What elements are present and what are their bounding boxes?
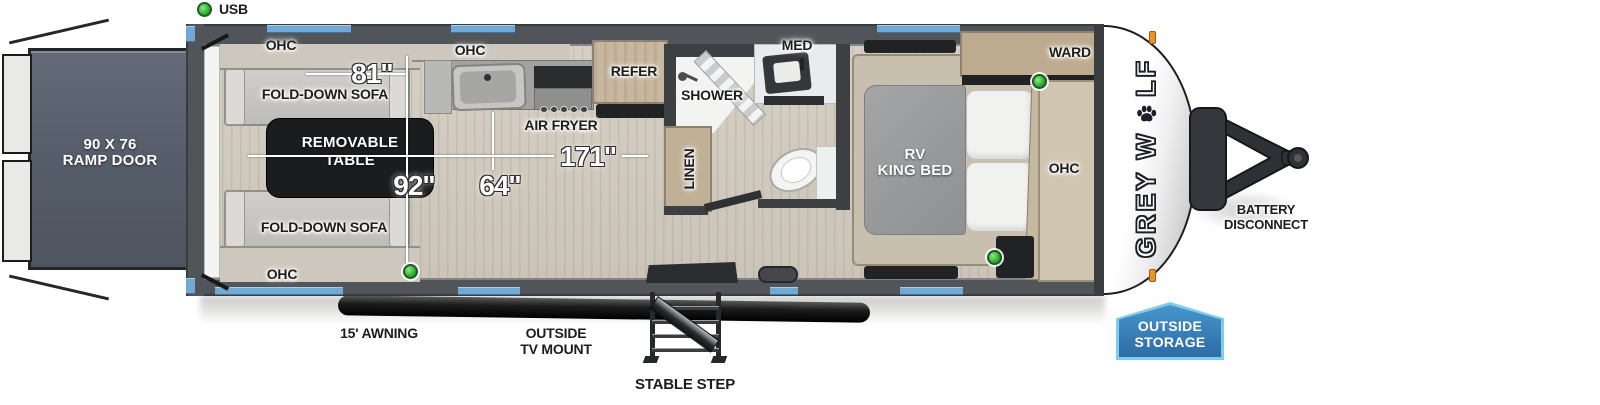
burner-icon (560, 106, 568, 113)
fold-down-sofa-label-bottom: FOLD-DOWN SOFA (244, 219, 404, 235)
outside-storage-label-line1: OUTSIDE (1138, 318, 1202, 334)
ramp-support-top (2, 54, 32, 154)
step-foot (643, 356, 660, 363)
window-strip (770, 287, 798, 295)
stable-step (644, 290, 740, 366)
dim-line-171-left (248, 155, 554, 157)
usb-port-icon (1032, 74, 1047, 89)
usb-legend-icon (197, 2, 212, 17)
dim-label-92: 92" (372, 170, 456, 202)
bath-sink-bowl (773, 61, 801, 84)
entry-door (646, 262, 738, 283)
ramp-door-label-line1: 90 X 76 (50, 136, 170, 153)
ramp-cable-bottom (9, 275, 109, 301)
floorplan: 90 X 76 RAMP DOOR REMOVABLE TABLE (0, 0, 1600, 405)
tv-mount-label-line2: TV MOUNT (496, 341, 616, 357)
bath-wall-bottom-right (758, 199, 836, 208)
awning-label: 15' AWNING (316, 325, 442, 341)
battery-disconnect-label-line1: BATTERY (1206, 202, 1326, 217)
sofa-armrest (225, 191, 245, 247)
ohc-label-top: OHC (221, 37, 341, 53)
ohc-label-bottom: OHC (222, 266, 342, 282)
burner-icon (570, 106, 578, 113)
ramp-cable-top (9, 19, 109, 45)
ramp-support-bottom (2, 160, 32, 262)
refrigerator-base (596, 104, 668, 118)
window-strip (215, 287, 343, 295)
paw-icon (1135, 103, 1157, 125)
stable-step-label: STABLE STEP (625, 376, 745, 393)
bedroom-divider-wall (836, 44, 850, 210)
med-label: MED (737, 37, 857, 53)
bed-label-line2: KING BED (855, 162, 975, 179)
window-strip (900, 287, 963, 295)
logo-text-part1: GREY W (1131, 131, 1162, 258)
bath-faucet-icon (800, 58, 804, 70)
outside-storage-badge: OUTSIDE STORAGE (1116, 302, 1224, 360)
fold-down-sofa-label-top: FOLD-DOWN SOFA (245, 86, 405, 102)
bed-label-line1: RV (855, 146, 975, 163)
kitchen-cabinet-end (424, 60, 452, 114)
window-strip (186, 278, 195, 294)
window-strip (458, 287, 520, 295)
faucet-icon (484, 74, 491, 81)
burner-row (540, 103, 594, 116)
burner-icon (580, 106, 588, 113)
usb-legend-label: USB (219, 1, 259, 17)
removable-table-label-line1: REMOVABLE (290, 134, 410, 151)
sofa-armrest (225, 69, 245, 125)
air-fryer-label: AIR FRYER (501, 117, 621, 133)
hitch (1186, 100, 1311, 218)
burner-icon (550, 106, 558, 113)
ohc-bedroom-cabinet (1038, 80, 1100, 282)
marker-light-icon (1149, 269, 1156, 282)
window-strip (186, 26, 195, 42)
window-strip (451, 25, 515, 33)
step-foot (711, 356, 728, 363)
battery-disconnect-label-line2: DISCONNECT (1206, 217, 1326, 232)
outside-storage-badge-face: OUTSIDE STORAGE (1119, 305, 1221, 357)
marker-light-icon (1149, 31, 1156, 44)
ramp-door-label-line2: RAMP DOOR (50, 152, 170, 169)
vanity-base (764, 96, 824, 105)
window-strip (877, 25, 960, 33)
usb-port-icon (403, 264, 418, 279)
dim-label-64: 64" (458, 170, 542, 202)
nightstand-top (864, 40, 956, 53)
dim-label-171: 171" (546, 141, 630, 173)
tv-mount-label-line1: OUTSIDE (496, 325, 616, 341)
bed-pillow (966, 90, 1034, 160)
logo-text-part2: LF (1131, 58, 1162, 97)
outside-storage-label-line2: STORAGE (1134, 334, 1205, 350)
rear-door-opening (204, 46, 220, 278)
usb-port-icon (987, 250, 1002, 265)
shower-label: SHOWER (652, 87, 772, 103)
rear-wall (186, 24, 204, 296)
bath-cabinet (816, 146, 838, 204)
grab-handle (758, 266, 798, 283)
refer-label: REFER (574, 63, 694, 79)
grey-wolf-logo: GREY WLF (1124, 58, 1168, 258)
nightstand-bottom (864, 266, 958, 279)
ohc-label-kitchen: OHC (410, 42, 530, 58)
burner-icon (540, 106, 548, 113)
linen-label: LINEN (681, 129, 697, 209)
window-strip (267, 25, 351, 33)
dim-line-64 (492, 112, 494, 170)
step-tread (649, 296, 719, 353)
